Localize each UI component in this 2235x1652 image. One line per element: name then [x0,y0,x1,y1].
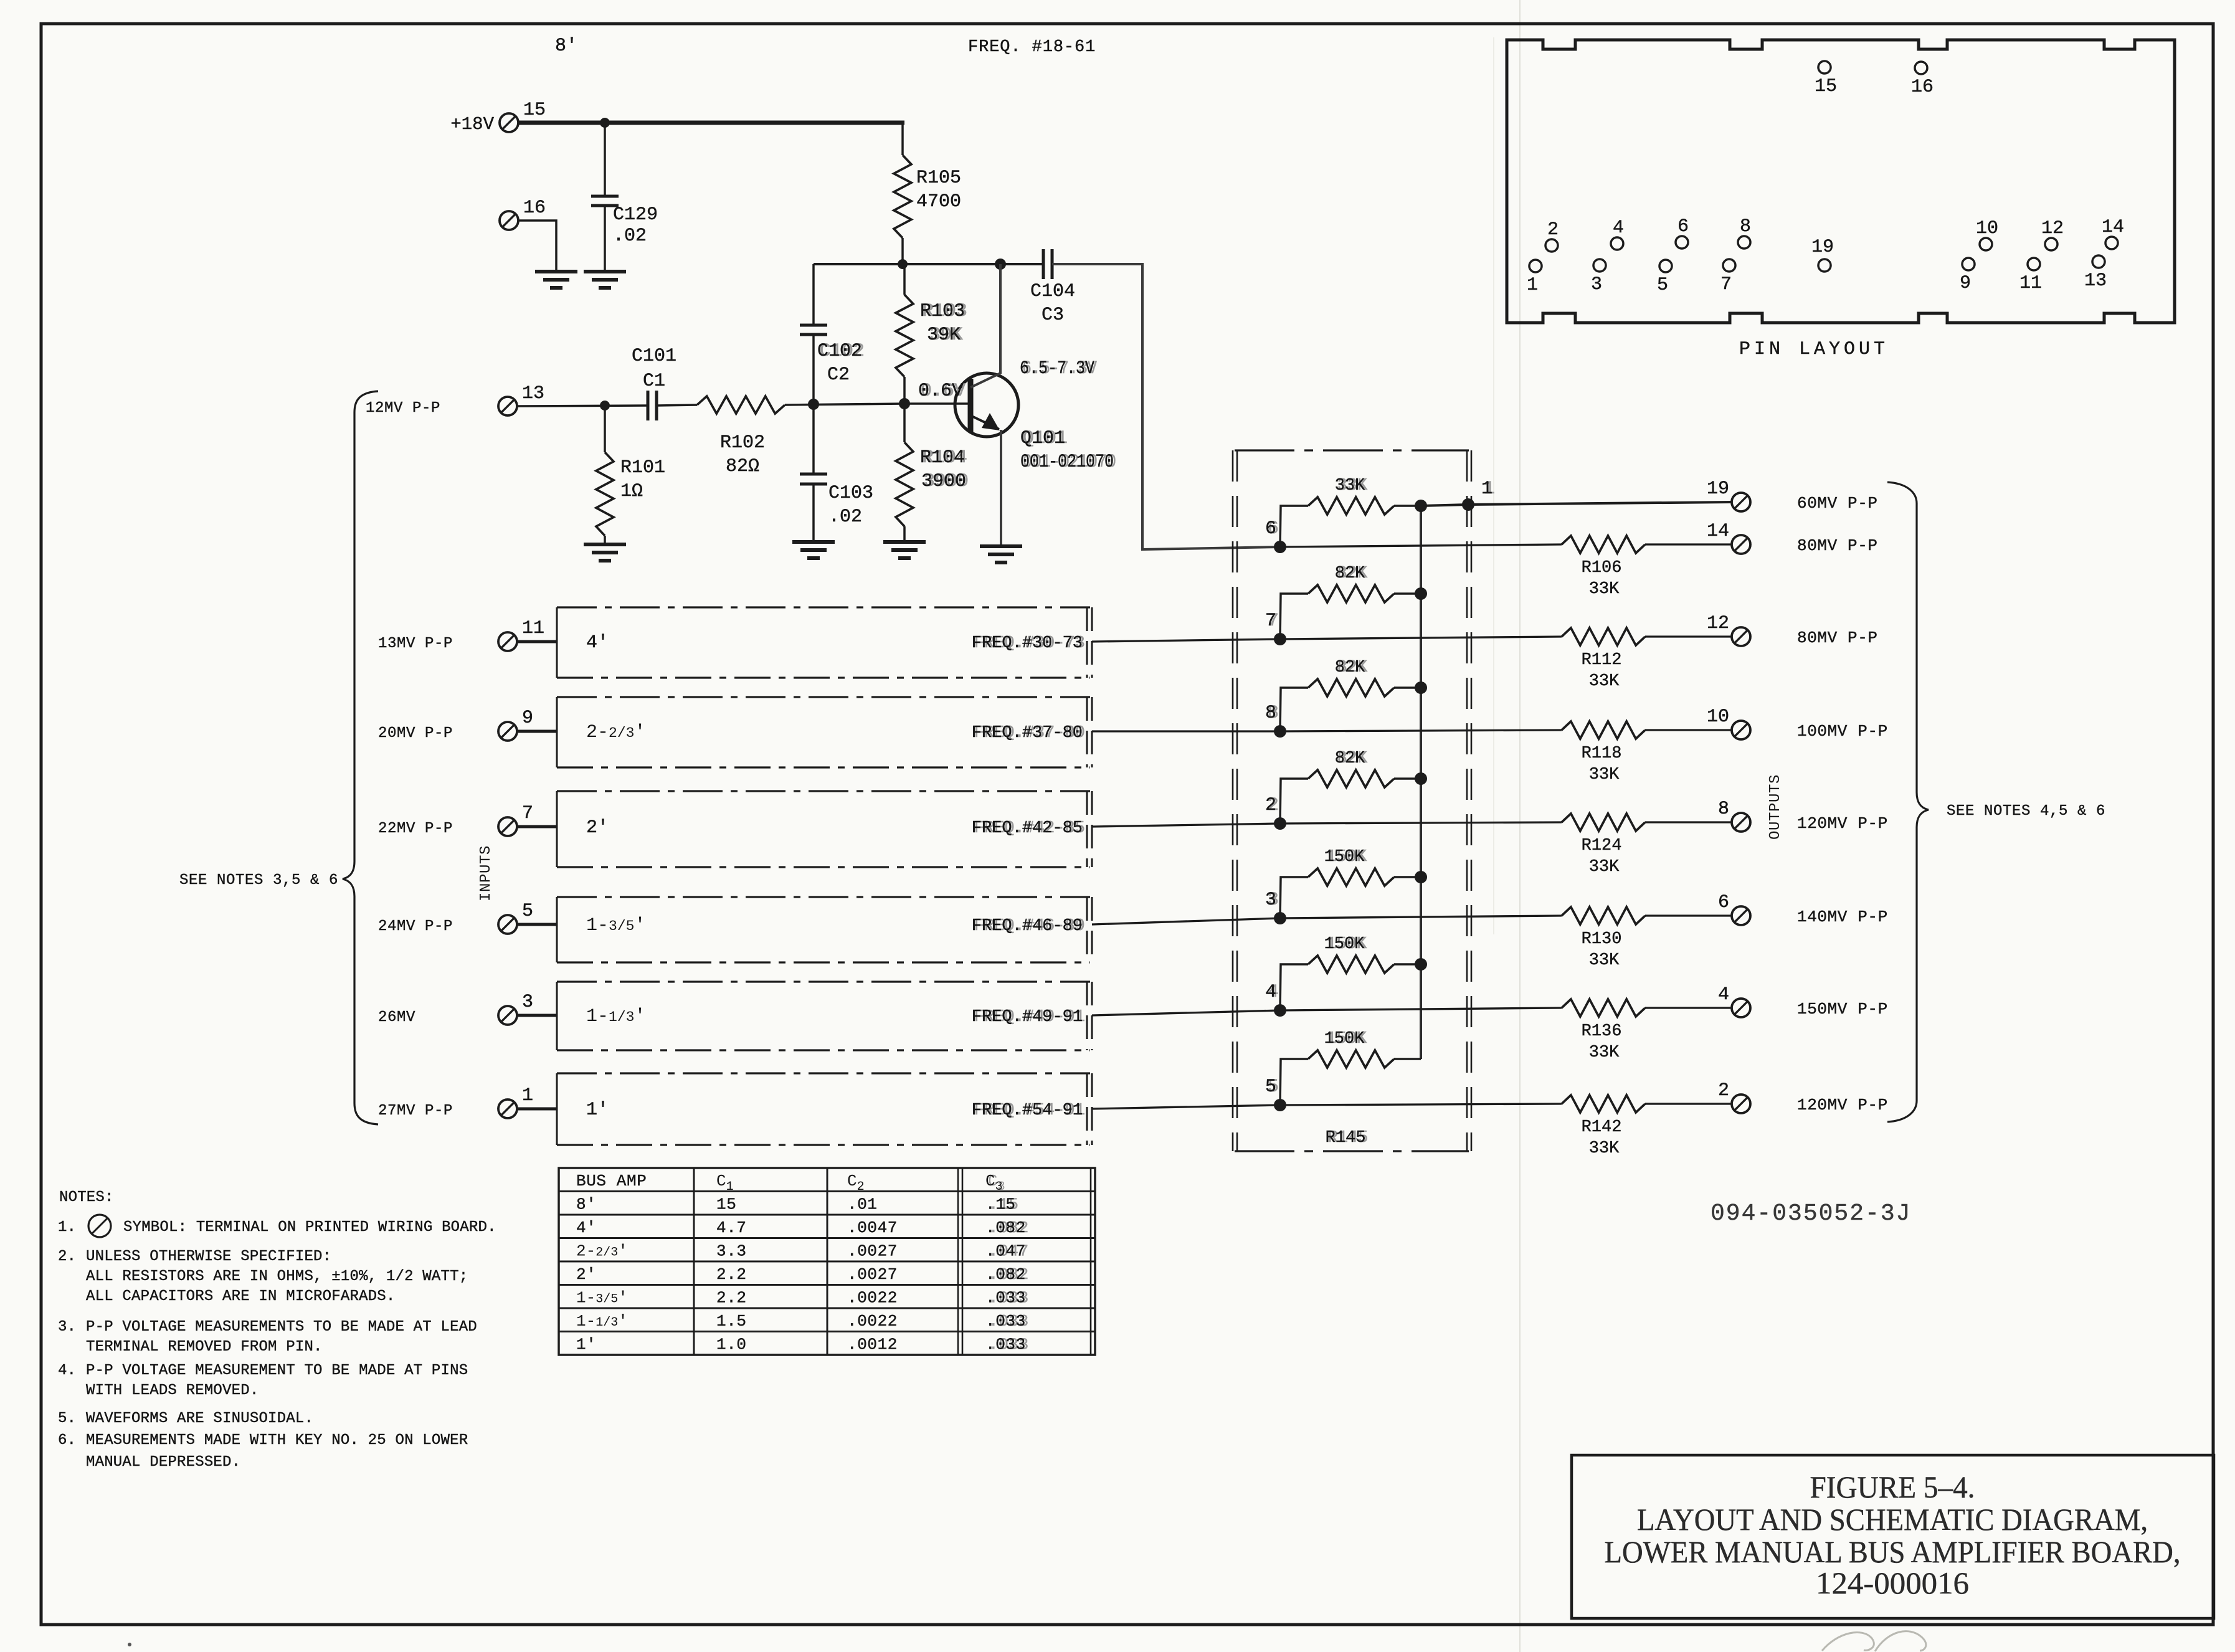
svg-text:SEE NOTES 4,5 & 6: SEE NOTES 4,5 & 6 [1947,803,2105,820]
svg-text:15: 15 [523,100,546,121]
svg-text:FREQ.#42-85: FREQ.#42-85 [972,819,1083,838]
svg-text:4.: 4. [58,1362,76,1379]
svg-text:1Ω: 1Ω [620,481,643,502]
svg-text:9: 9 [522,708,533,729]
svg-text:FREQ.#49-91: FREQ.#49-91 [972,1008,1083,1027]
svg-text:UNLESS OTHERWISE SPECIFIED:: UNLESS OTHERWISE SPECIFIED: [86,1248,331,1265]
svg-text:C102: C102 [817,341,862,362]
svg-text:FREQ. #18-61: FREQ. #18-61 [968,38,1096,57]
svg-text:6.: 6. [58,1432,76,1449]
svg-text:.15: .15 [985,1195,1016,1213]
svg-text:C2: C2 [827,364,850,386]
svg-text:.0022: .0022 [847,1288,898,1307]
svg-text:11: 11 [522,618,544,639]
svg-text:9: 9 [1960,273,1971,294]
svg-text:4': 4' [576,1218,596,1237]
svg-text:8: 8 [1718,799,1729,820]
svg-text:R145: R145 [1326,1129,1366,1147]
svg-text:R104: R104 [920,447,965,468]
svg-text:R106: R106 [1582,559,1622,577]
svg-text:P-P VOLTAGE MEASUREMENT TO BE: P-P VOLTAGE MEASUREMENT TO BE MADE AT PI… [86,1362,468,1379]
svg-text:140MV P-P: 140MV P-P [1797,908,1888,926]
svg-text:2': 2' [586,817,609,838]
svg-text:2.2: 2.2 [716,1288,747,1307]
svg-text:7: 7 [1720,274,1732,295]
svg-text:PIN LAYOUT: PIN LAYOUT [1739,339,1889,360]
svg-text:1: 1 [1527,275,1538,296]
svg-text:.0027: .0027 [847,1241,898,1260]
svg-text:1-3/5': 1-3/5' [586,915,645,936]
svg-text:C101: C101 [632,346,676,367]
svg-text:10: 10 [1976,218,1998,239]
svg-text:33K: 33K [1589,1139,1620,1158]
svg-text:39K: 39K [927,325,961,346]
svg-text:19: 19 [1811,237,1834,258]
svg-text:15: 15 [1815,76,1837,97]
svg-text:+18V: +18V [450,114,494,135]
svg-text:150K: 150K [1324,1030,1365,1048]
svg-text:3: 3 [522,992,533,1013]
svg-text:16: 16 [523,197,546,219]
svg-text:2.: 2. [58,1248,76,1265]
svg-text:4700: 4700 [916,191,961,212]
svg-text:1': 1' [576,1335,596,1354]
svg-text:12MV P-P: 12MV P-P [366,400,440,417]
svg-text:1.: 1. [58,1219,76,1236]
svg-text:4: 4 [1718,984,1729,1005]
svg-text:R112: R112 [1582,651,1622,670]
svg-text:2': 2' [576,1265,596,1284]
svg-text:ALL RESISTORS ARE IN OHMS, ±10: ALL RESISTORS ARE IN OHMS, ±10%, 1/2 WAT… [86,1268,468,1285]
svg-text:LOWER MANUAL BUS AMPLIFIER BOA: LOWER MANUAL BUS AMPLIFIER BOARD, [1605,1534,2181,1569]
svg-text:.0027: .0027 [847,1265,898,1284]
svg-text:100MV P-P: 100MV P-P [1797,722,1888,741]
svg-text:80MV P-P: 80MV P-P [1797,536,1878,555]
svg-text:R105: R105 [916,168,961,189]
svg-text:27MV P-P: 27MV P-P [378,1103,453,1119]
svg-text:INPUTS: INPUTS [478,845,495,901]
svg-text:8': 8' [555,36,577,57]
svg-text:SYMBOL: TERMINAL ON PRINTED WI: SYMBOL: TERMINAL ON PRINTED WIRING BOARD… [123,1219,496,1236]
svg-text:.0047: .0047 [847,1218,898,1237]
svg-text:R101: R101 [620,457,665,478]
svg-text:Q101: Q101 [1020,428,1065,449]
svg-text:MEASUREMENTS MADE WITH KEY NO.: MEASUREMENTS MADE WITH KEY NO. 25 ON LOW… [86,1432,468,1449]
svg-text:82Ω: 82Ω [726,456,759,477]
svg-text:16: 16 [1911,77,1934,98]
svg-text:82K: 82K [1335,749,1365,768]
svg-text:.082: .082 [985,1218,1026,1237]
svg-text:22MV P-P: 22MV P-P [378,820,453,837]
svg-text:120MV P-P: 120MV P-P [1797,1096,1888,1114]
svg-text:LAYOUT AND SCHEMATIC DIAGRAM,: LAYOUT AND SCHEMATIC DIAGRAM, [1637,1502,2148,1537]
svg-text:5: 5 [1265,1076,1276,1098]
svg-text:3: 3 [1265,890,1276,911]
svg-text:15: 15 [716,1195,736,1213]
svg-text:.033: .033 [985,1288,1026,1307]
svg-text:12: 12 [1707,613,1729,634]
svg-text:.082: .082 [985,1265,1026,1284]
svg-text:.033: .033 [985,1335,1026,1354]
svg-text:33K: 33K [1589,858,1620,876]
svg-text:33K: 33K [1335,477,1365,495]
svg-text:.0022: .0022 [847,1312,898,1331]
svg-text:5: 5 [1657,275,1668,296]
svg-text:BUS AMP: BUS AMP [576,1172,647,1190]
svg-text:NOTES:: NOTES: [59,1189,114,1206]
svg-text:TERMINAL REMOVED FROM PIN.: TERMINAL REMOVED FROM PIN. [86,1339,323,1355]
svg-text:2.2: 2.2 [716,1265,747,1284]
svg-text:24MV P-P: 24MV P-P [378,918,453,935]
svg-text:FREQ.#54-91: FREQ.#54-91 [972,1101,1083,1120]
svg-text:13MV P-P: 13MV P-P [378,635,453,652]
svg-text:094-035052-3J: 094-035052-3J [1711,1200,1911,1227]
svg-text:C104: C104 [1030,281,1075,302]
svg-text:33K: 33K [1589,580,1620,599]
svg-text:33K: 33K [1589,672,1620,691]
svg-text:.01: .01 [847,1195,878,1213]
svg-text:2-2/3': 2-2/3' [586,722,645,743]
svg-text:FREQ.#30-73: FREQ.#30-73 [972,634,1083,653]
svg-text:7: 7 [1265,610,1276,632]
svg-text:82K: 82K [1335,658,1365,677]
svg-text:5: 5 [522,901,533,922]
svg-text:R142: R142 [1582,1118,1622,1137]
svg-text:13: 13 [522,383,544,404]
svg-text:150MV P-P: 150MV P-P [1797,1000,1888,1018]
svg-text:FREQ.#37-80: FREQ.#37-80 [972,724,1083,743]
svg-text:1.0: 1.0 [716,1335,747,1354]
svg-text:1: 1 [1481,478,1492,500]
svg-text:001-021070: 001-021070 [1020,452,1114,473]
svg-text:6: 6 [1718,892,1729,913]
svg-text:6: 6 [1265,518,1276,539]
svg-text:1': 1' [586,1099,609,1121]
svg-text:R103: R103 [920,301,965,322]
svg-text:124-000016: 124-000016 [1816,1565,1969,1600]
svg-text:33K: 33K [1589,1043,1620,1062]
svg-text:FIGURE 5–4.: FIGURE 5–4. [1810,1469,1975,1504]
svg-text:SEE NOTES 3,5 & 6: SEE NOTES 3,5 & 6 [179,872,338,889]
svg-text:8: 8 [1265,703,1276,724]
svg-text:3: 3 [1591,274,1602,295]
svg-text:8': 8' [576,1195,596,1213]
svg-text:3900: 3900 [921,471,966,492]
svg-text:11: 11 [2019,273,2042,294]
svg-text:82K: 82K [1335,564,1365,583]
svg-text:1.5: 1.5 [716,1312,747,1331]
svg-text:.0012: .0012 [847,1335,898,1354]
svg-text:.02: .02 [828,506,862,528]
svg-text:120MV P-P: 120MV P-P [1797,814,1888,833]
svg-text:FREQ.#46-89: FREQ.#46-89 [972,917,1083,936]
svg-text:13: 13 [2084,270,2107,292]
svg-text:150K: 150K [1324,935,1365,954]
svg-text:P-P VOLTAGE MEASUREMENTS TO BE: P-P VOLTAGE MEASUREMENTS TO BE MADE AT L… [86,1319,477,1336]
svg-text:33K: 33K [1589,766,1620,784]
svg-text:10: 10 [1707,706,1729,728]
svg-text:C103: C103 [828,483,873,504]
svg-text:2: 2 [1547,219,1559,240]
svg-text:12: 12 [2041,218,2064,239]
svg-text:6: 6 [1677,216,1689,237]
svg-text:4: 4 [1613,217,1624,239]
svg-text:MANUAL DEPRESSED.: MANUAL DEPRESSED. [86,1454,240,1471]
svg-text:R130: R130 [1582,930,1622,949]
svg-text:1-1/3': 1-1/3' [586,1006,645,1027]
svg-text:1: 1 [522,1085,533,1106]
svg-text:7: 7 [522,803,533,824]
svg-text:.033: .033 [985,1312,1026,1331]
svg-text:C129: C129 [613,204,658,225]
svg-text:C1: C1 [643,371,665,392]
svg-text:ALL CAPACITORS ARE IN MICROFAR: ALL CAPACITORS ARE IN MICROFARADS. [86,1288,395,1305]
svg-text:80MV P-P: 80MV P-P [1797,629,1878,647]
svg-text:0.6V: 0.6V [918,381,963,402]
svg-text:4.7: 4.7 [716,1218,747,1237]
svg-text:60MV P-P: 60MV P-P [1797,494,1878,513]
svg-text:150K: 150K [1324,848,1365,866]
svg-text:3.: 3. [58,1319,76,1336]
svg-text:6.5-7.3V: 6.5-7.3V [1020,358,1094,379]
svg-text:8: 8 [1740,216,1751,237]
svg-text:C3: C3 [1042,305,1064,326]
svg-text:R118: R118 [1582,744,1622,763]
svg-text:33K: 33K [1589,951,1620,970]
svg-text:4': 4' [586,632,609,653]
svg-text:.047: .047 [985,1241,1026,1260]
svg-text:OUTPUTS: OUTPUTS [1767,774,1784,840]
svg-text:R136: R136 [1582,1022,1622,1041]
svg-text:19: 19 [1707,478,1729,500]
svg-text:14: 14 [2102,217,2124,238]
svg-text:20MV P-P: 20MV P-P [378,725,453,742]
svg-text:5.: 5. [58,1410,76,1427]
svg-text:R102: R102 [720,432,765,453]
svg-text:4: 4 [1265,982,1276,1003]
svg-text:R124: R124 [1582,837,1622,855]
svg-text:14: 14 [1707,521,1729,542]
svg-text:2: 2 [1265,795,1276,816]
svg-text:26MV: 26MV [378,1009,415,1026]
svg-text:.02: .02 [613,225,647,247]
svg-text:3.3: 3.3 [716,1241,747,1260]
svg-text:2: 2 [1718,1080,1729,1101]
svg-text:WAVEFORMS ARE SINUSOIDAL.: WAVEFORMS ARE SINUSOIDAL. [86,1410,313,1427]
svg-text:WITH LEADS REMOVED.: WITH LEADS REMOVED. [86,1382,259,1399]
